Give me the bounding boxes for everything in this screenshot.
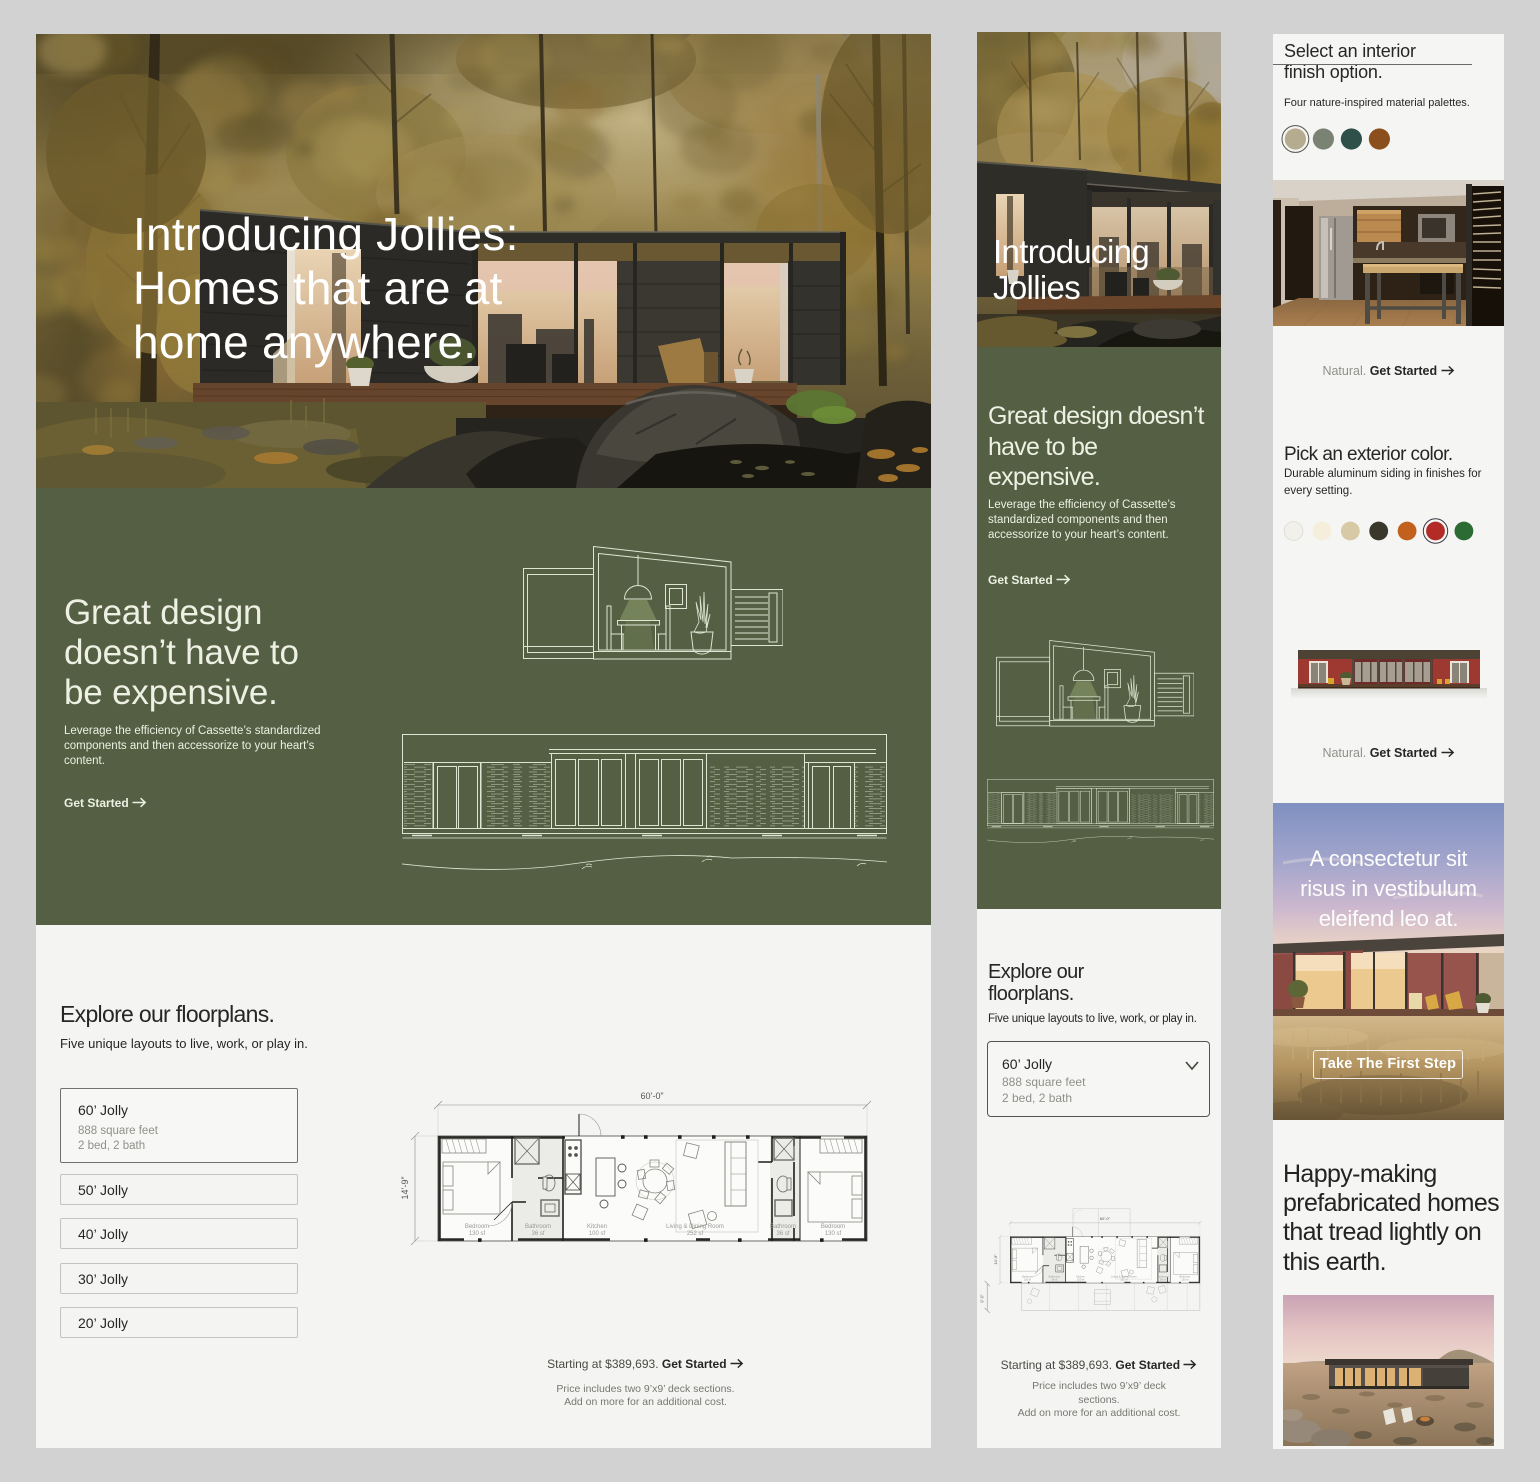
svg-text:9’-0”: 9’-0”	[980, 1294, 985, 1303]
